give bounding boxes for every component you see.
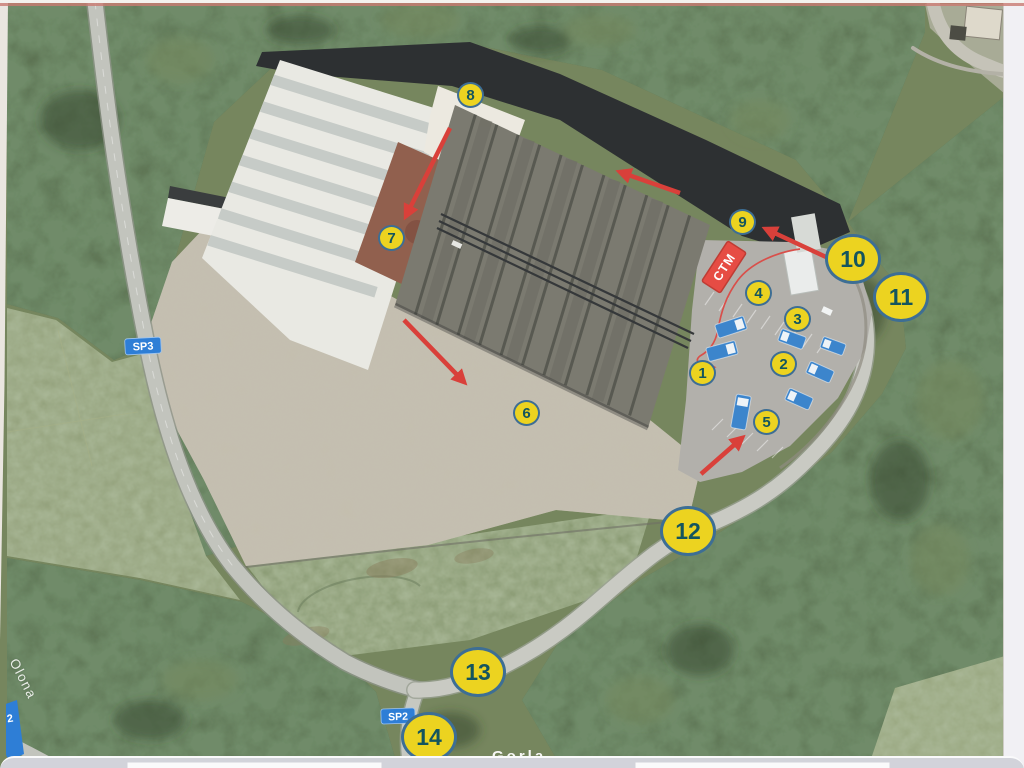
page-edge-top-shadow — [0, 3, 1024, 6]
road-badge-sp3: SP3 — [125, 337, 162, 355]
desk-surface-edge — [0, 756, 1024, 768]
map-marker-4: 4 — [745, 280, 772, 306]
map-marker-6: 6 — [513, 400, 540, 426]
map-marker-14: 14 — [401, 712, 457, 762]
map-marker-13: 13 — [450, 647, 506, 697]
aerial-map-photo: CTM SP3 SP2 2 1 2 3 4 5 6 7 8 9 10 11 12… — [0, 0, 1024, 768]
map-marker-10: 10 — [825, 234, 881, 284]
map-marker-9: 9 — [729, 209, 756, 235]
map-marker-5: 5 — [753, 409, 780, 435]
map-marker-1: 1 — [689, 360, 716, 386]
map-marker-11: 11 — [873, 272, 929, 322]
satellite-map: CTM SP3 SP2 2 — [0, 0, 1024, 768]
map-marker-2: 2 — [770, 351, 797, 377]
map-marker-8: 8 — [457, 82, 484, 108]
map-marker-3: 3 — [784, 306, 811, 332]
map-marker-12: 12 — [660, 506, 716, 556]
page-margin-right — [1003, 0, 1024, 768]
map-marker-7: 7 — [378, 225, 405, 251]
svg-text:SP3: SP3 — [132, 340, 153, 353]
